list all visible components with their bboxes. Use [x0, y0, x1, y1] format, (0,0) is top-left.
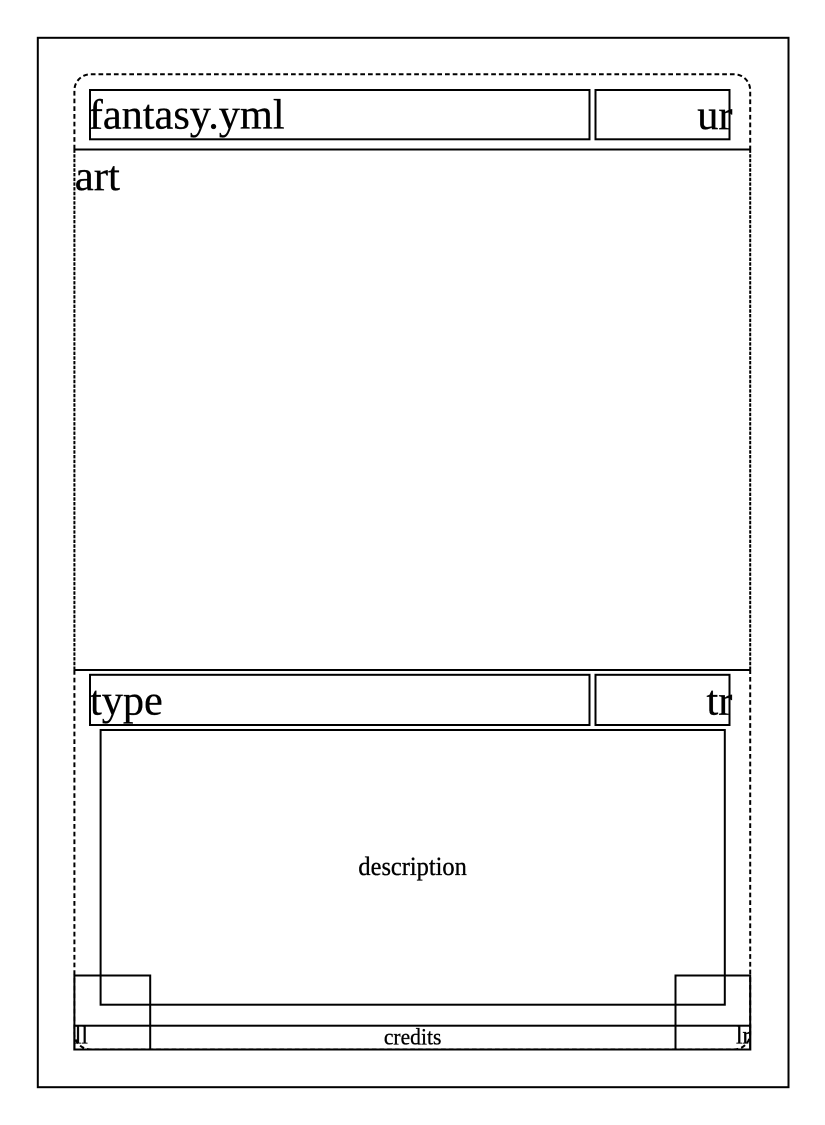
svg-text:lr: lr: [736, 1022, 750, 1050]
svg-text:description: description: [358, 851, 466, 881]
svg-text:art: art: [75, 153, 120, 200]
svg-text:type: type: [90, 677, 163, 724]
svg-text:tr: tr: [706, 677, 732, 724]
svg-text:fantasy.yml: fantasy.yml: [89, 91, 285, 138]
svg-text:ll: ll: [75, 1022, 88, 1050]
svg-text:ur: ur: [697, 92, 732, 139]
svg-text:credits: credits: [384, 1024, 442, 1050]
